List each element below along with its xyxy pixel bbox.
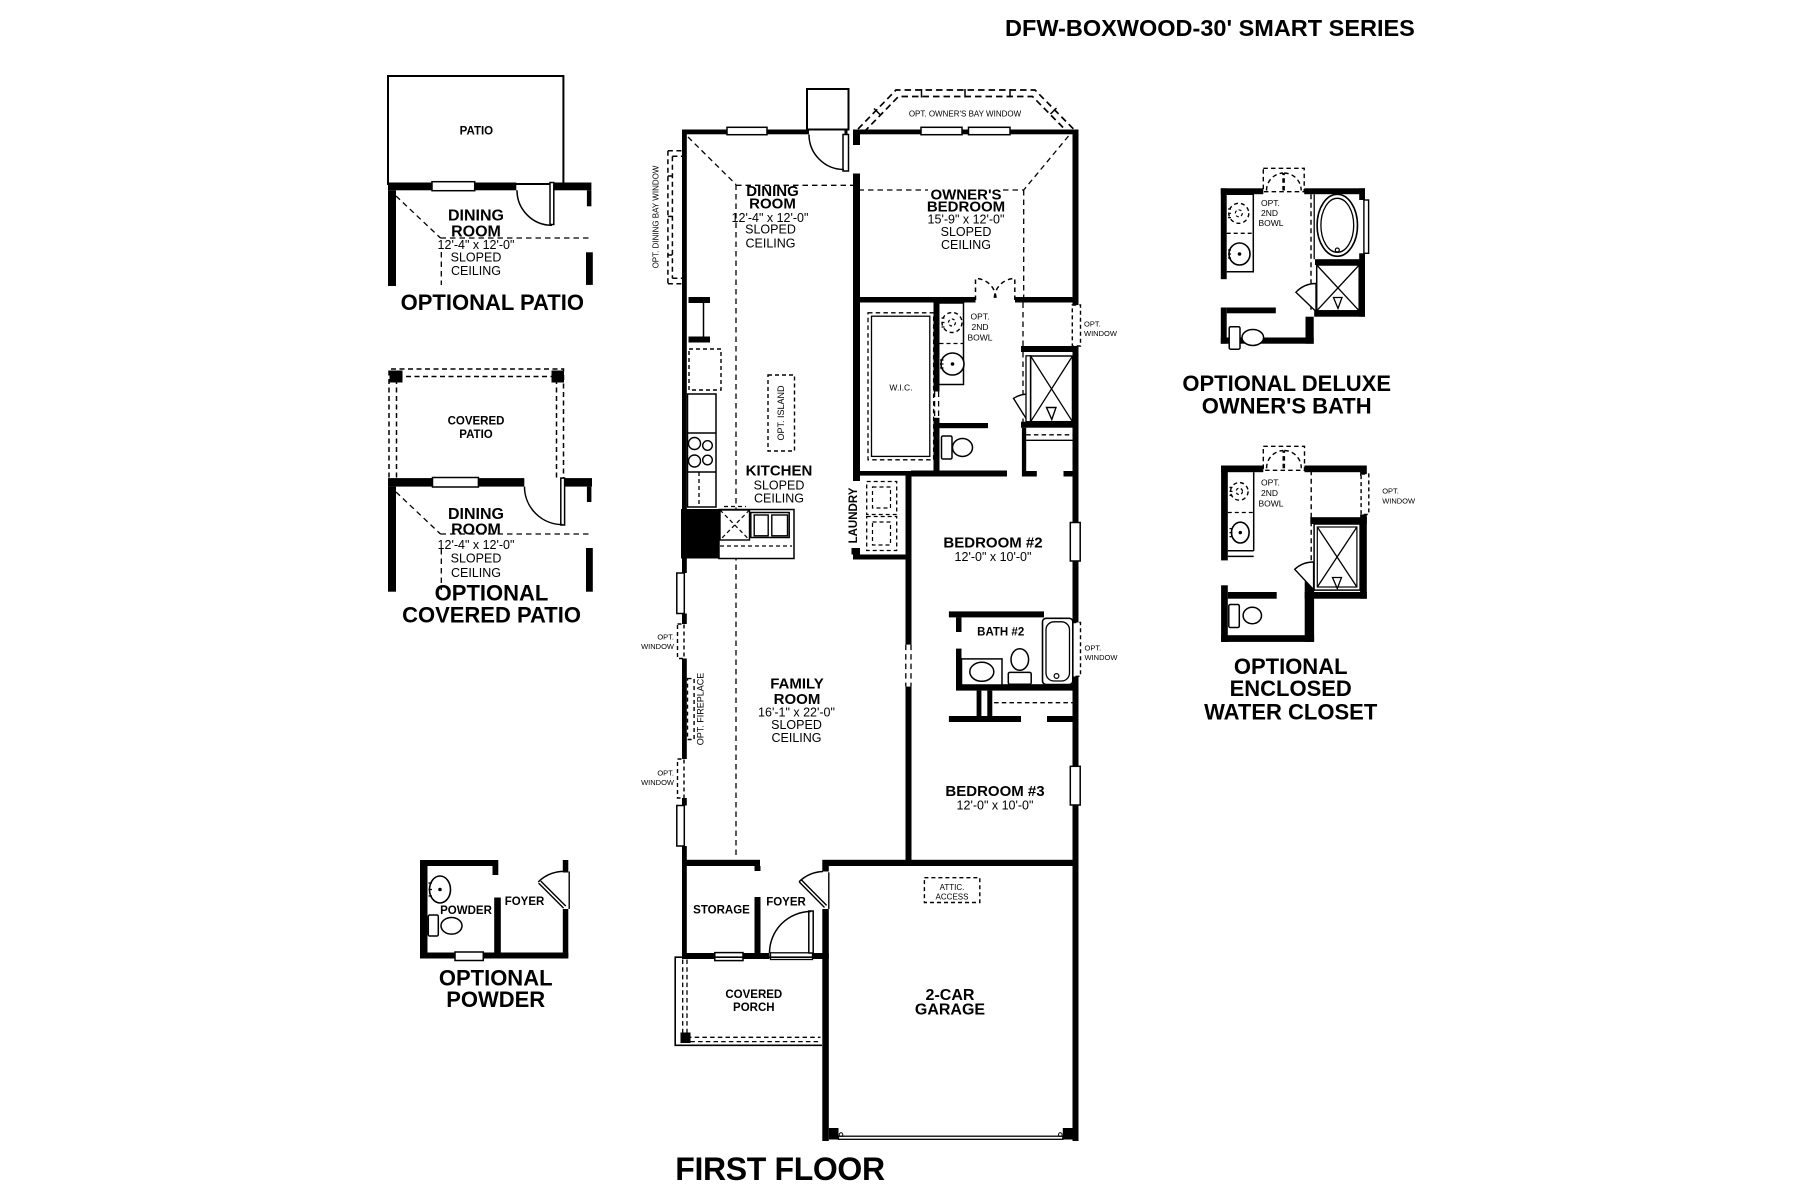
svg-text:PORCH: PORCH — [733, 1002, 775, 1014]
svg-text:OPT. DINING BAY WINDOW: OPT. DINING BAY WINDOW — [652, 165, 661, 268]
svg-text:FAMILY: FAMILY — [770, 675, 824, 692]
svg-text:OPTIONAL DELUXE: OPTIONAL DELUXE — [1182, 371, 1391, 396]
svg-text:OPT.: OPT. — [1261, 198, 1280, 208]
svg-text:DINING: DINING — [448, 208, 504, 225]
svg-text:ACCESS: ACCESS — [936, 893, 969, 902]
svg-text:STORAGE: STORAGE — [693, 905, 750, 917]
svg-text:DINING: DINING — [448, 506, 504, 523]
svg-text:2ND: 2ND — [971, 322, 988, 332]
svg-text:LAUNDRY: LAUNDRY — [848, 487, 860, 543]
svg-text:COVERED: COVERED — [725, 989, 782, 1001]
svg-text:WINDOW: WINDOW — [641, 778, 675, 787]
svg-text:GARAGE: GARAGE — [915, 1002, 986, 1019]
svg-text:BATH #2: BATH #2 — [977, 627, 1024, 639]
svg-text:OPTIONAL PATIO: OPTIONAL PATIO — [401, 290, 584, 315]
svg-text:BEDROOM #2: BEDROOM #2 — [943, 534, 1042, 551]
svg-text:PATIO: PATIO — [460, 126, 493, 138]
svg-text:SLOPED: SLOPED — [771, 718, 822, 732]
svg-text:WINDOW: WINDOW — [641, 642, 675, 651]
svg-text:WINDOW: WINDOW — [1382, 496, 1416, 505]
svg-text:12'-4" x 12'-0": 12'-4" x 12'-0" — [438, 538, 515, 552]
svg-text:CEILING: CEILING — [451, 264, 501, 278]
svg-text:OPT.: OPT. — [1085, 644, 1102, 653]
svg-text:OPT. ISLAND: OPT. ISLAND — [776, 385, 786, 441]
svg-text:BOWL: BOWL — [1259, 499, 1284, 509]
svg-text:OPT.: OPT. — [657, 769, 674, 778]
svg-text:WINDOW: WINDOW — [1085, 653, 1119, 662]
svg-text:WINDOW: WINDOW — [1084, 329, 1118, 338]
svg-text:BOWL: BOWL — [1259, 218, 1284, 228]
svg-text:CEILING: CEILING — [451, 566, 501, 580]
svg-text:CEILING: CEILING — [745, 237, 795, 251]
svg-text:SLOPED: SLOPED — [941, 225, 992, 239]
svg-text:COVERED PATIO: COVERED PATIO — [402, 603, 581, 628]
svg-text:SLOPED: SLOPED — [451, 251, 502, 265]
svg-text:ENCLOSED: ENCLOSED — [1230, 676, 1352, 701]
svg-text:SLOPED: SLOPED — [745, 223, 796, 237]
svg-text:12'-0" x 10'-0": 12'-0" x 10'-0" — [957, 798, 1034, 812]
svg-text:KITCHEN: KITCHEN — [746, 463, 813, 480]
svg-text:OPT.: OPT. — [1261, 478, 1280, 488]
svg-text:POWDER: POWDER — [440, 905, 492, 917]
svg-text:BOWL: BOWL — [967, 333, 992, 343]
svg-text:ATTIC.: ATTIC. — [940, 883, 965, 892]
svg-text:FIRST FLOOR: FIRST FLOOR — [675, 1151, 885, 1187]
svg-text:OWNER'S BATH: OWNER'S BATH — [1202, 394, 1372, 419]
svg-text:OPT.: OPT. — [971, 312, 990, 322]
svg-text:PATIO: PATIO — [459, 429, 492, 441]
svg-text:OPT. FIREPLACE: OPT. FIREPLACE — [696, 673, 706, 746]
svg-text:COVERED: COVERED — [448, 416, 505, 428]
svg-text:2ND: 2ND — [1261, 208, 1278, 218]
svg-text:12'-0" x 10'-0": 12'-0" x 10'-0" — [955, 550, 1032, 564]
svg-text:ROOM: ROOM — [451, 522, 501, 539]
svg-text:WATER CLOSET: WATER CLOSET — [1204, 700, 1378, 725]
svg-text:FOYER: FOYER — [505, 896, 545, 908]
svg-text:OPT.: OPT. — [1382, 486, 1399, 495]
svg-text:CEILING: CEILING — [771, 731, 821, 745]
svg-text:POWDER: POWDER — [446, 987, 545, 1012]
svg-text:OPT.: OPT. — [1084, 320, 1101, 329]
svg-text:2ND: 2ND — [1261, 488, 1278, 498]
svg-text:OPT.: OPT. — [657, 633, 674, 642]
svg-text:DFW-BOXWOOD-30' SMART SERIES: DFW-BOXWOOD-30' SMART SERIES — [1005, 15, 1415, 41]
svg-text:CEILING: CEILING — [754, 491, 804, 505]
svg-text:FOYER: FOYER — [766, 897, 806, 909]
svg-text:CEILING: CEILING — [941, 238, 991, 252]
svg-text:OPT. OWNER'S BAY WINDOW: OPT. OWNER'S BAY WINDOW — [909, 109, 1022, 118]
svg-text:W.I.C.: W.I.C. — [889, 383, 912, 393]
svg-text:SLOPED: SLOPED — [451, 551, 502, 565]
